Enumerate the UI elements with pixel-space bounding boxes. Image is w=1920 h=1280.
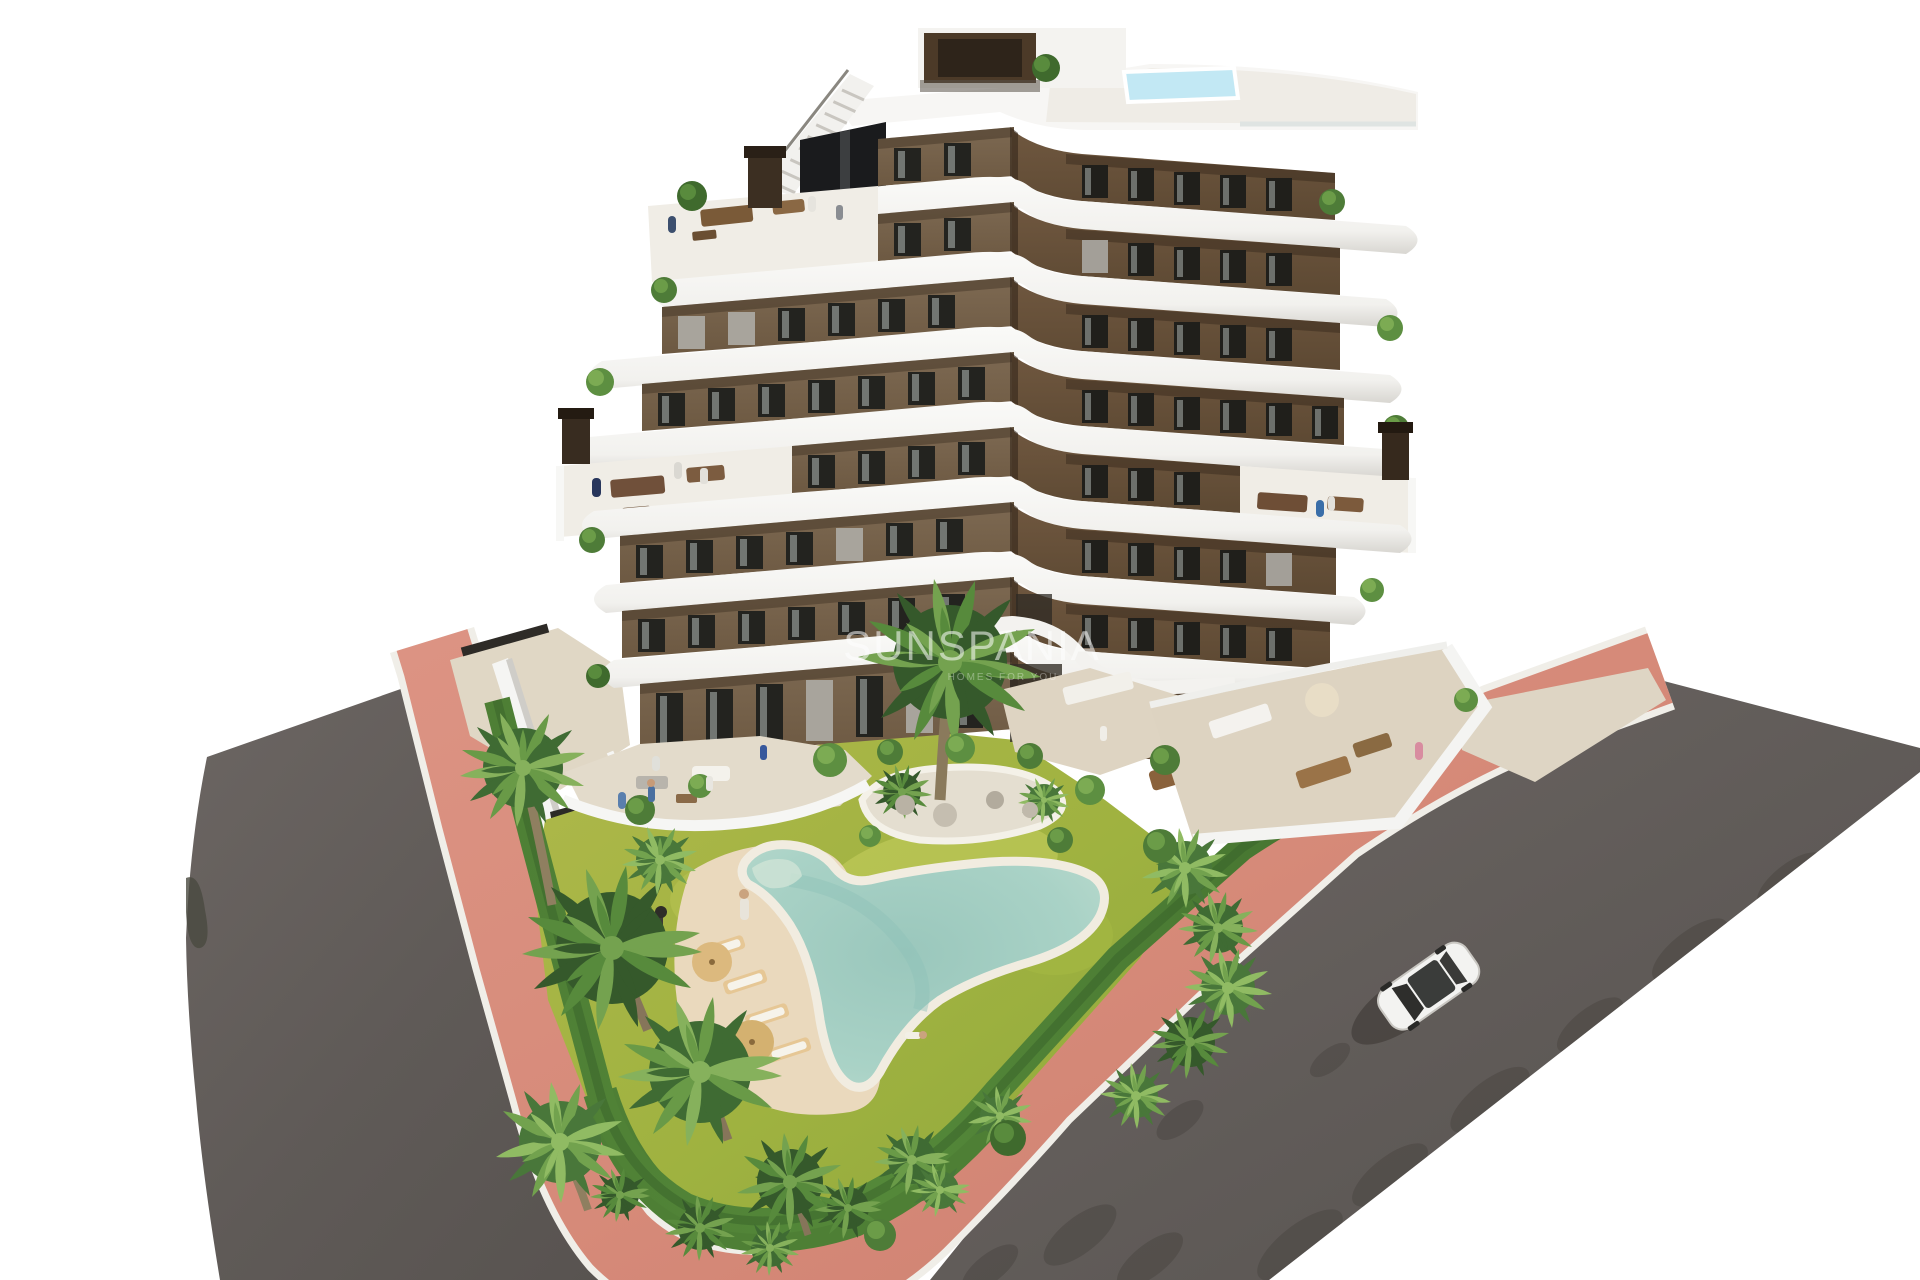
svg-text:SUNSPANIA: SUNSPANIA (843, 622, 1101, 669)
svg-text:HOMES FOR YOU: HOMES FOR YOU (948, 672, 1059, 683)
